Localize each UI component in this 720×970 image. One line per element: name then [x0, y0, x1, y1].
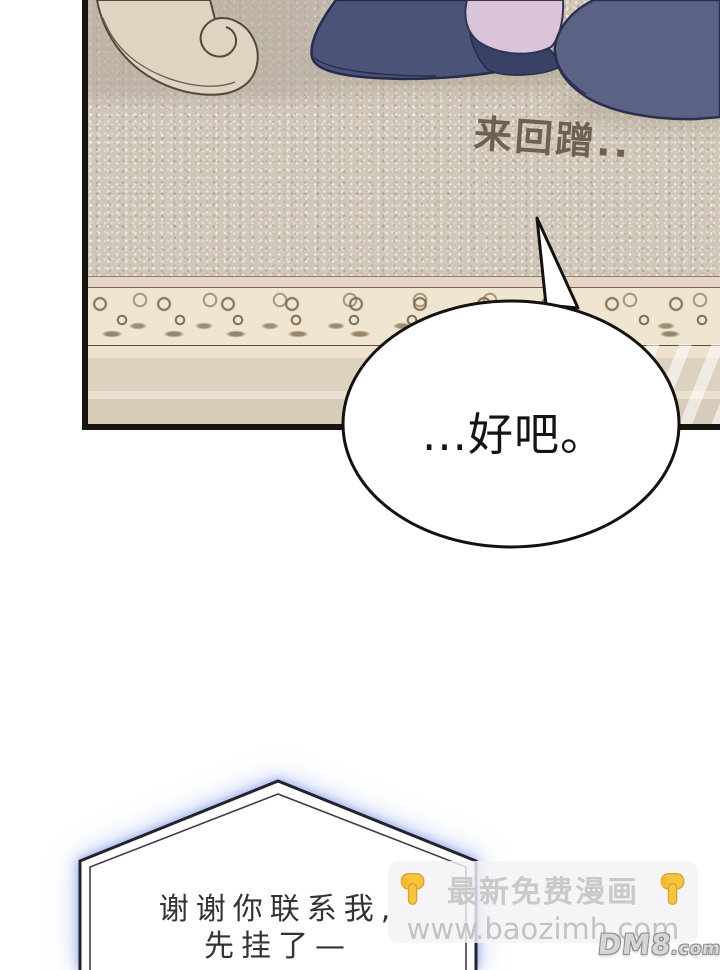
dm8-logo: DM8.com — [596, 928, 720, 961]
furniture-leg-illustration — [97, 0, 258, 95]
dm8-logo-suffix: .com — [670, 939, 720, 959]
speech-bubble-text: ...好吧。 — [346, 398, 682, 463]
speech-bubble — [330, 196, 702, 556]
sound-effect-text: 来回蹭.. — [472, 103, 633, 169]
hand-pointing-down-icon — [658, 871, 688, 907]
watermark-title-row: 最新免费漫画 — [388, 861, 698, 911]
speech-bubble-tail — [537, 218, 578, 308]
comic-page: 来回蹭.. ...好吧。 谢谢你联系我, 先挂了— 最新免费漫画 www.bao… — [0, 0, 720, 970]
hand-pointing-down-icon — [398, 871, 428, 907]
dm8-logo-main: DM8 — [596, 928, 673, 961]
right-slipper-illustration — [555, 0, 720, 119]
watermark-title: 最新免费漫画 — [447, 867, 639, 911]
